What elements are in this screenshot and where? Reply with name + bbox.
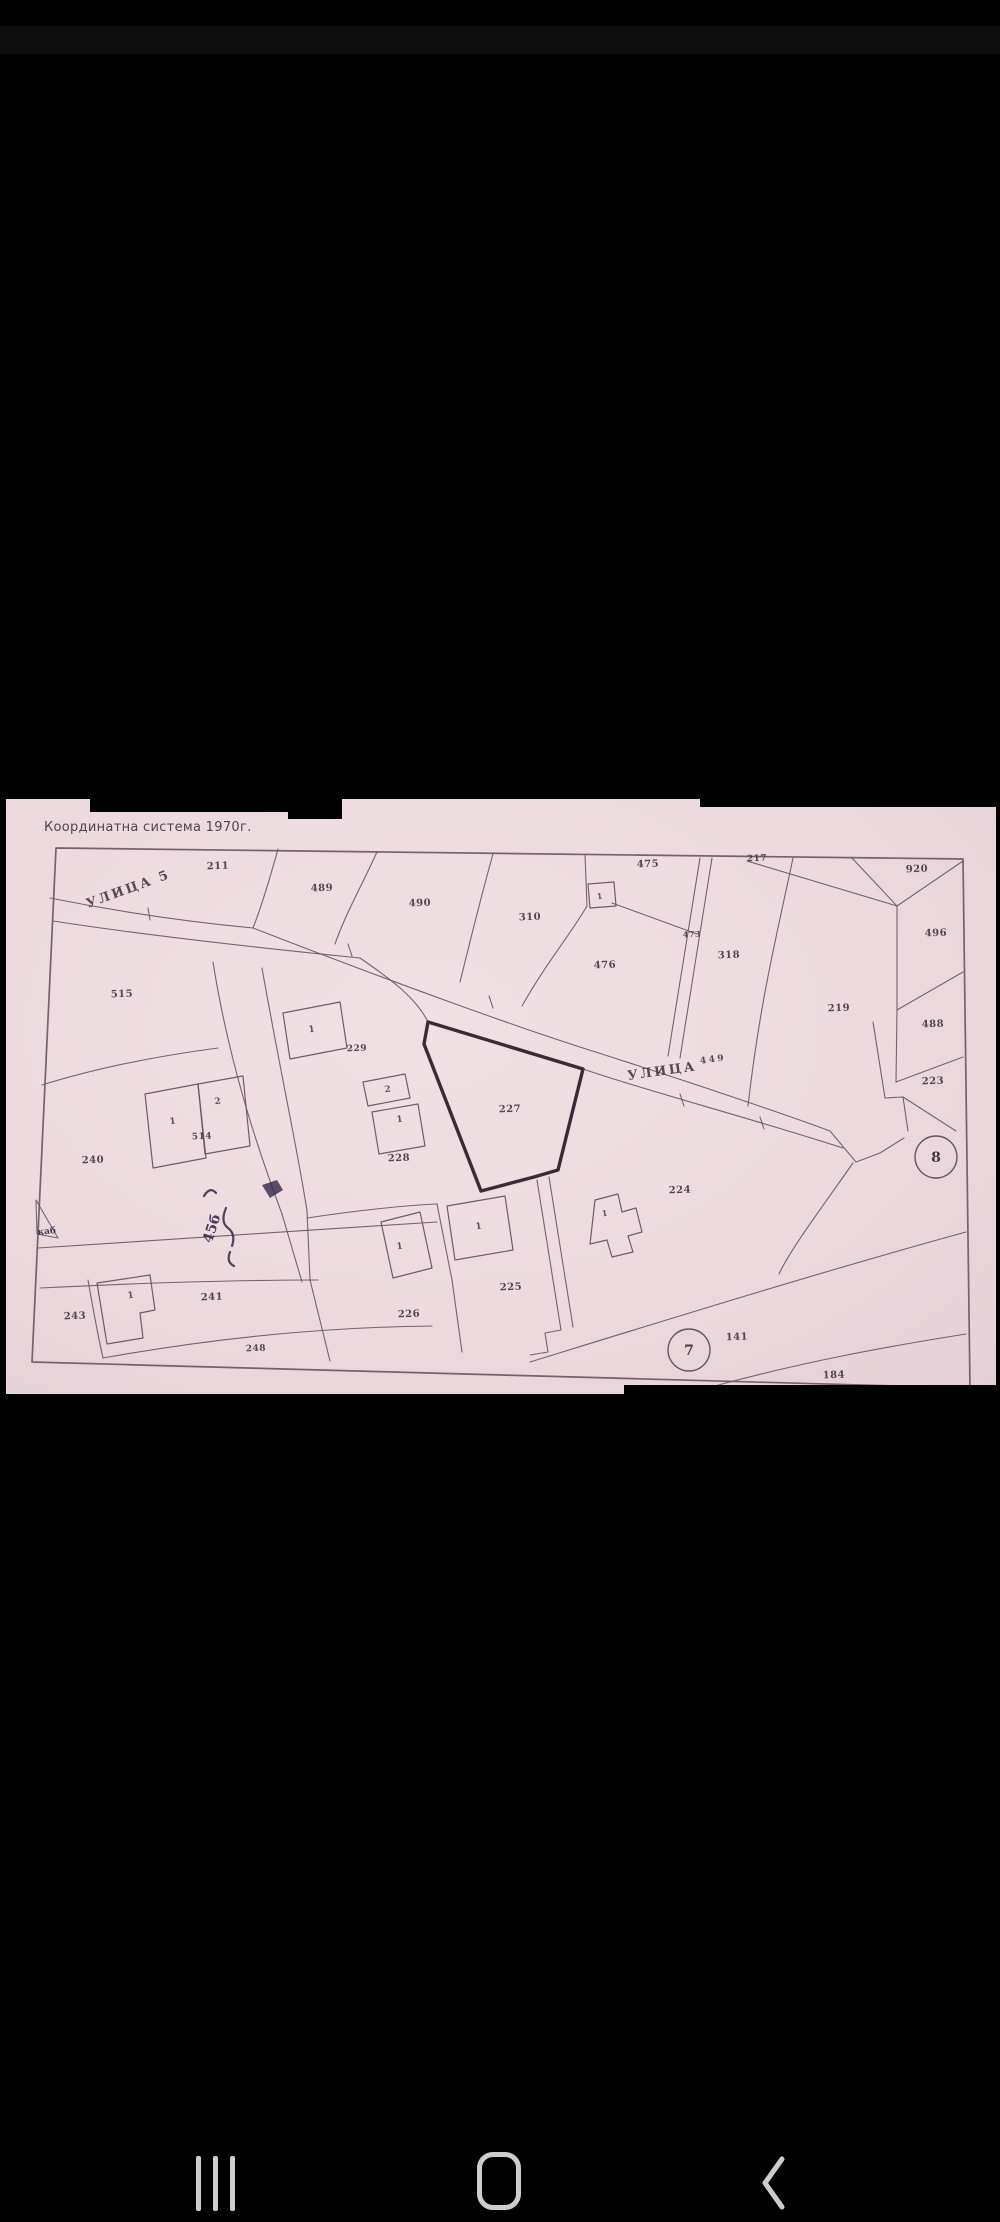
parcel-label-241: 241 — [201, 1292, 224, 1304]
building-number-label: 1 — [601, 1208, 608, 1219]
parcel-label-473: 473 — [683, 929, 702, 940]
parcel-label-228: 228 — [388, 1153, 411, 1165]
home-button[interactable] — [477, 2152, 521, 2210]
parcel-label-515: 515 — [111, 989, 134, 1001]
parcel-label-227: 227 — [499, 1104, 522, 1116]
building-number-label: 1 — [396, 1115, 404, 1126]
handwritten-annotation: каб — [37, 1225, 56, 1238]
parcel-label-476: 476 — [594, 960, 617, 972]
parcel-label-240: 240 — [82, 1155, 105, 1167]
status-bar — [0, 26, 1000, 54]
parcel-label-217: 217 — [747, 854, 768, 865]
building-number-label: 1 — [475, 1222, 483, 1233]
coordinate-system-caption: Координатна система 1970г. — [44, 820, 252, 835]
parcel-label-920: 920 — [906, 864, 929, 876]
photo-edge-notch — [624, 1385, 996, 1394]
back-button[interactable] — [758, 2154, 788, 2215]
cadastral-map: 2114894903104754764732179204964882232193… — [6, 799, 996, 1394]
map-labels: 2114894903104754764732179204964882232193… — [37, 854, 957, 1382]
building-number-label: 2 — [384, 1085, 392, 1096]
parcel-label-229: 229 — [347, 1044, 368, 1055]
home-icon — [477, 2152, 521, 2210]
parcel-label-488: 488 — [922, 1019, 945, 1031]
building-number-label: 2 — [214, 1097, 222, 1108]
building-number-label: 1 — [396, 1242, 404, 1253]
parcel-label-211: 211 — [207, 861, 230, 873]
building-number-label: 1 — [308, 1025, 316, 1036]
photo-edge-notch — [288, 799, 342, 819]
street-label: УЛИЦА449 — [626, 1053, 728, 1084]
phone-screen: 2114894903104754764732179204964882232193… — [0, 0, 1000, 2222]
parcel-label-226: 226 — [398, 1309, 421, 1321]
parcel-label-184: 184 — [823, 1370, 846, 1382]
parcel-label-475: 475 — [637, 859, 660, 871]
parcel-label-223: 223 — [922, 1076, 945, 1088]
parcel-label-141: 141 — [726, 1332, 749, 1344]
parcel-label-490: 490 — [409, 898, 432, 910]
parcel-label-225: 225 — [500, 1282, 523, 1294]
photo-edge-notch — [700, 799, 996, 807]
recents-button[interactable] — [196, 2156, 235, 2211]
quarter-number: 7 — [684, 1343, 694, 1359]
parcel-label-489: 489 — [311, 883, 334, 895]
street-label: УЛИЦА 5 — [84, 867, 172, 911]
cadastral-plan-photo[interactable]: 2114894903104754764732179204964882232193… — [6, 799, 996, 1394]
parcel-label-514: 514 — [192, 1132, 213, 1143]
handwritten-annotation: 45б — [200, 1213, 224, 1245]
parcel-label-219: 219 — [828, 1003, 851, 1015]
parcel-label-318: 318 — [718, 950, 741, 962]
parcel-label-243: 243 — [64, 1311, 87, 1323]
parcel-label-310: 310 — [519, 912, 542, 924]
recents-icon — [196, 2156, 235, 2211]
map-buildings — [97, 882, 642, 1344]
building-number-label: 1 — [169, 1117, 177, 1128]
parcel-label-224: 224 — [669, 1185, 692, 1197]
back-icon — [758, 2154, 788, 2212]
building-number-label: 1 — [127, 1291, 135, 1302]
android-navigation-bar — [0, 2140, 1000, 2222]
building-number-label: 1 — [596, 891, 603, 902]
parcel-label-248: 248 — [246, 1344, 267, 1355]
quarter-number: 8 — [931, 1150, 941, 1166]
parcel-label-496: 496 — [925, 928, 948, 940]
